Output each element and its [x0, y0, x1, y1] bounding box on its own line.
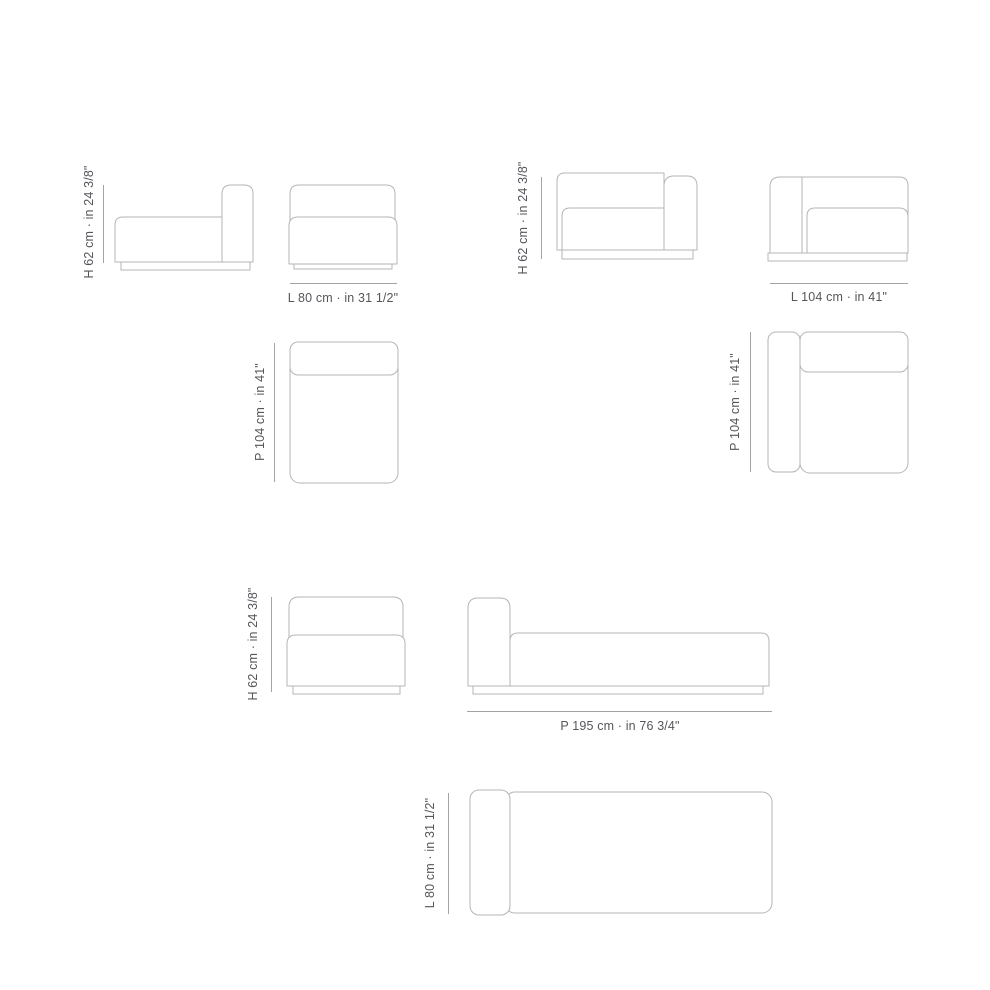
- chaise-front-view: [272, 597, 406, 694]
- plinth-outline: [473, 686, 763, 694]
- armrest-outline: [664, 176, 697, 250]
- depth-dimension-label: P 104 cm · in 41": [253, 363, 267, 461]
- width-dimension-label: L 80 cm · in 31 1/2": [288, 291, 399, 305]
- seat-outline: [807, 208, 908, 253]
- furniture-line-art: [0, 0, 990, 990]
- plinth-outline: [294, 264, 392, 269]
- plinth-outline: [121, 262, 250, 270]
- dimension-sheet: H 62 cm · in 24 3/8" L 80 cm · in 31 1/2…: [0, 0, 990, 990]
- depth-dimension-label: P 104 cm · in 41": [728, 353, 742, 451]
- armrest-outline: [768, 332, 800, 472]
- module-104-side-view: [542, 173, 698, 259]
- height-dimension-label: H 62 cm · in 24 3/8": [246, 587, 260, 700]
- depth-dimension-label: P 195 cm · in 76 3/4": [560, 719, 679, 733]
- module-104-front-view: [768, 177, 908, 284]
- plinth-outline: [768, 253, 907, 261]
- height-dimension-label: H 62 cm · in 24 3/8": [82, 165, 96, 278]
- backrest-outline: [222, 185, 253, 262]
- backrest-outline: [468, 598, 510, 686]
- seat-outline: [287, 635, 405, 686]
- backrest-band-outline: [290, 342, 398, 375]
- plinth-outline: [293, 686, 400, 694]
- seat-outline: [562, 208, 664, 250]
- module-104-top-view: [751, 332, 909, 473]
- backrest-band-outline: [800, 332, 908, 372]
- chaise-top-view: [449, 790, 773, 915]
- backrest-band-outline: [470, 790, 510, 915]
- seat-outline: [289, 217, 397, 264]
- width-dimension-label: L 104 cm · in 41": [791, 290, 887, 304]
- module-80-front-view: [289, 185, 397, 284]
- seat-outline: [510, 633, 769, 686]
- width-dimension-label: L 80 cm · in 31 1/2": [423, 798, 437, 909]
- height-dimension-label: H 62 cm · in 24 3/8": [516, 161, 530, 274]
- armrest-outline: [770, 177, 802, 253]
- module-80-side-view: [104, 185, 254, 270]
- module-80-top-view: [275, 342, 399, 483]
- body-outline: [505, 792, 772, 913]
- chaise-side-view: [467, 598, 772, 712]
- plinth-outline: [562, 250, 693, 259]
- seat-outline: [115, 217, 222, 262]
